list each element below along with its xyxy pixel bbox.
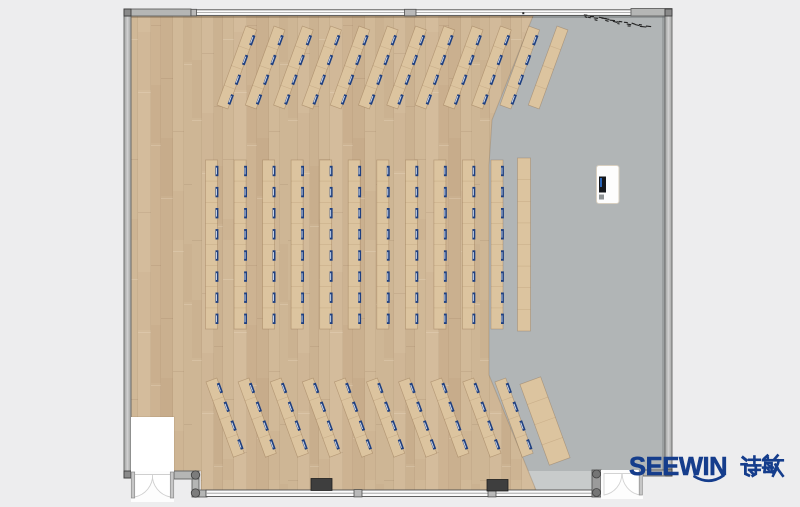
svg-text:SEEWIN: SEEWIN bbox=[629, 453, 727, 481]
